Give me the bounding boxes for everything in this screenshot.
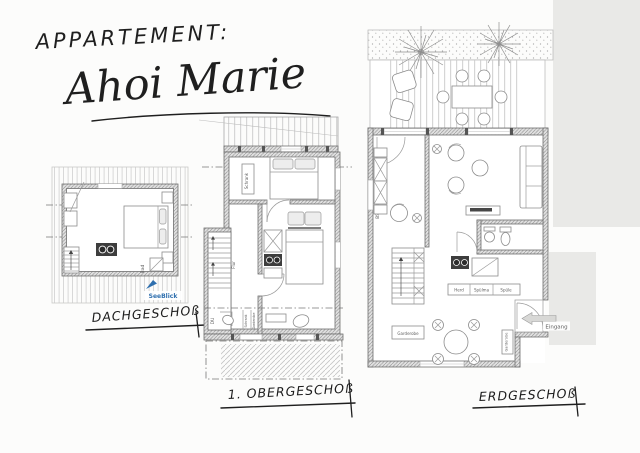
sheet-title: APPARTEMENT: xyxy=(33,20,231,54)
flur-label: Flur xyxy=(231,261,236,269)
floorplan-drawing: APPARTEMENT: Ahoi Marie xyxy=(0,0,640,453)
seeblick-label: SeeBlick xyxy=(149,293,179,300)
spuele-label: Spüle xyxy=(500,288,512,293)
entry-court xyxy=(549,252,596,345)
garderobe-label: Garderobe xyxy=(397,331,419,336)
garderobe-left: Garderobe xyxy=(392,326,424,339)
plan-dachgeschoss: Bad SeeBlick DACHGESCHOß xyxy=(46,167,206,337)
header: APPARTEMENT: Ahoi Marie xyxy=(33,20,330,121)
caption-obergeschoss: 1. OBERGESCHOß xyxy=(227,380,354,402)
wardrobe: Schrank xyxy=(242,164,254,194)
caption-erdgeschoss: ERDGESCHOß xyxy=(479,386,577,404)
plan-obergeschoss: Schrank xyxy=(199,117,355,417)
neighbor-area xyxy=(553,0,640,227)
kitchenette xyxy=(264,254,282,278)
stairs xyxy=(392,248,424,304)
nightstand xyxy=(162,252,173,263)
eingang-label: Eingang xyxy=(545,325,567,331)
du-label: DU xyxy=(210,318,216,325)
herd-label: Herd xyxy=(454,288,464,293)
schrank2-label: Schrank xyxy=(244,314,248,327)
stairs xyxy=(64,247,79,273)
terrace xyxy=(206,341,342,379)
apartment-name: Ahoi Marie xyxy=(59,48,307,115)
plan-sheet: APPARTEMENT: Ahoi Marie xyxy=(0,0,640,453)
nightstand xyxy=(162,192,173,203)
caption-dachgeschoss: DACHGESCHOß xyxy=(91,302,200,325)
schrank-label: Schrank xyxy=(244,172,249,189)
window xyxy=(98,184,122,189)
bad-label: Bad xyxy=(140,265,146,274)
gravel-strip xyxy=(368,30,553,60)
closet-x xyxy=(264,230,282,252)
bed-master xyxy=(270,157,318,199)
garderobe-right: Garderobe xyxy=(502,330,513,354)
plan-erdgeschoss: BS Wand = 50 DB xyxy=(368,0,640,416)
garderobe-label: Garderobe xyxy=(505,332,509,352)
garderobe-label: Garderobe xyxy=(252,313,256,330)
kitchenette xyxy=(96,243,117,256)
spuelma-label: Spülma xyxy=(474,288,490,293)
balcony xyxy=(224,117,338,149)
